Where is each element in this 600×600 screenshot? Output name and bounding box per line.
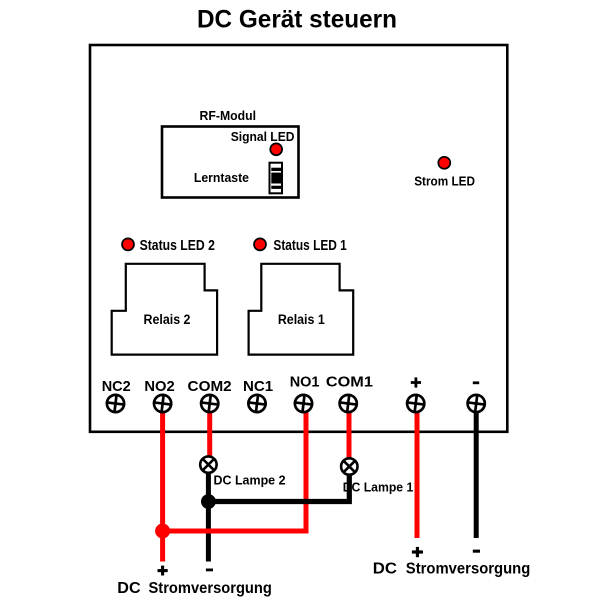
svg-text:DC Lampe 2: DC Lampe 2 xyxy=(214,473,286,488)
svg-text:COM2: COM2 xyxy=(188,378,232,395)
svg-text:NO2: NO2 xyxy=(144,378,174,395)
svg-text:NO1: NO1 xyxy=(290,375,320,391)
svg-text:Relais 2: Relais 2 xyxy=(144,312,191,327)
svg-text:Lerntaste: Lerntaste xyxy=(194,170,249,185)
svg-text:Status LED 2: Status LED 2 xyxy=(140,238,215,254)
svg-text:RF-Modul: RF-Modul xyxy=(200,108,257,123)
svg-text:Stromversorgung: Stromversorgung xyxy=(149,580,272,597)
svg-text:Strom LED: Strom LED xyxy=(414,173,475,188)
svg-text:Signal LED: Signal LED xyxy=(231,129,295,144)
svg-text:Relais 1: Relais 1 xyxy=(278,312,325,327)
svg-text:DC Gerät steuern: DC Gerät steuern xyxy=(197,6,397,34)
svg-text:DC: DC xyxy=(373,560,397,577)
svg-text:Stromversorgung: Stromversorgung xyxy=(406,560,531,577)
svg-text:Status LED 1: Status LED 1 xyxy=(273,238,346,254)
svg-text:COM1: COM1 xyxy=(326,375,373,391)
svg-text:DC: DC xyxy=(117,580,140,597)
svg-text:NC2: NC2 xyxy=(102,378,131,395)
svg-text:NC1: NC1 xyxy=(243,378,273,395)
svg-text:DC Lampe 1: DC Lampe 1 xyxy=(343,480,414,495)
